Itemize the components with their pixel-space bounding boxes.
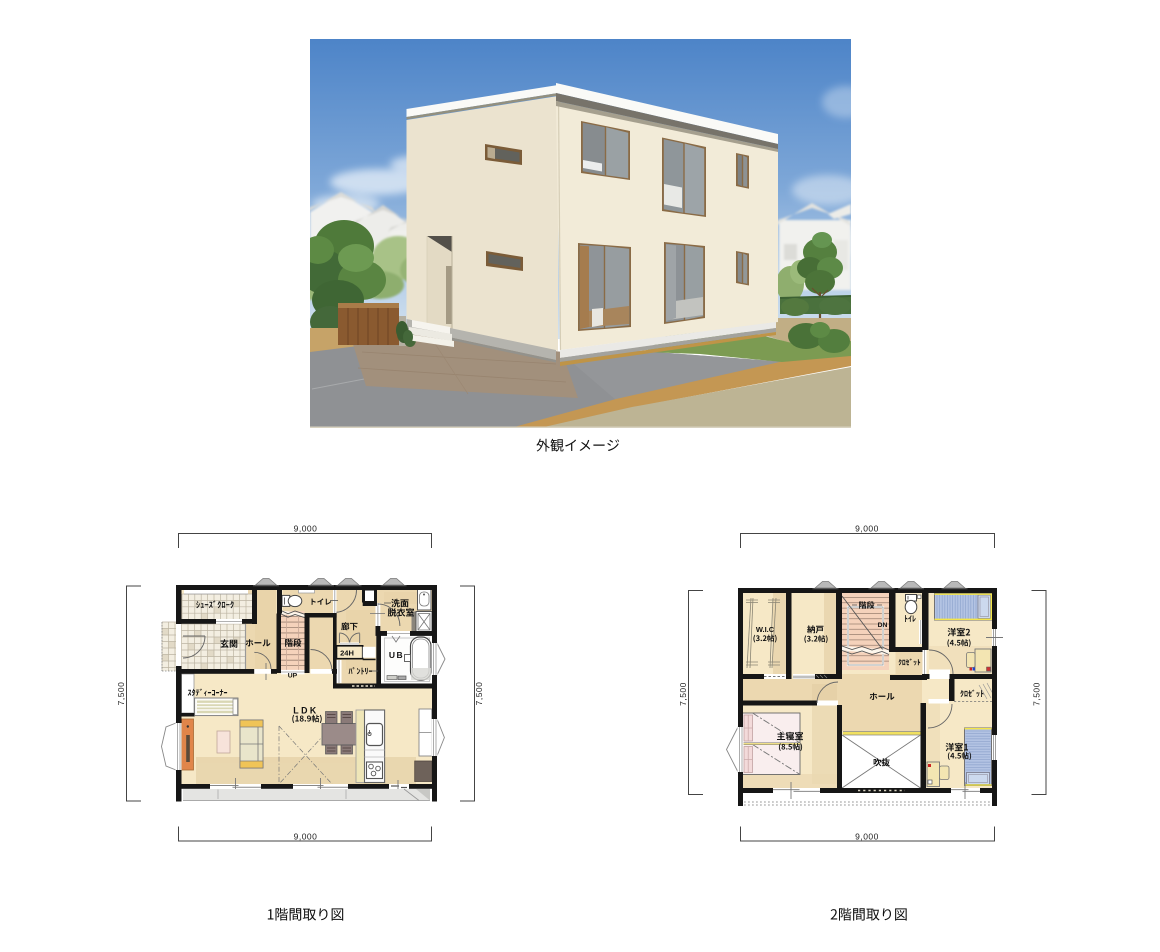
- svg-text:7,500: 7,500: [1032, 682, 1042, 706]
- svg-text:7,500: 7,500: [116, 682, 126, 706]
- svg-text:W.I.C: W.I.C: [756, 625, 775, 634]
- svg-text:7,500: 7,500: [474, 682, 484, 706]
- svg-text:9,000: 9,000: [294, 832, 318, 842]
- svg-text:24H: 24H: [340, 648, 354, 657]
- svg-text:7,500: 7,500: [678, 682, 688, 706]
- svg-text:DN: DN: [878, 622, 888, 629]
- svg-text:9,000: 9,000: [294, 524, 318, 534]
- svg-text:UB: UB: [389, 650, 404, 660]
- svg-text:9,000: 9,000: [855, 832, 879, 842]
- svg-text:LDK: LDK: [293, 706, 319, 716]
- svg-text:9,000: 9,000: [855, 524, 879, 534]
- svg-text:UP: UP: [288, 673, 298, 680]
